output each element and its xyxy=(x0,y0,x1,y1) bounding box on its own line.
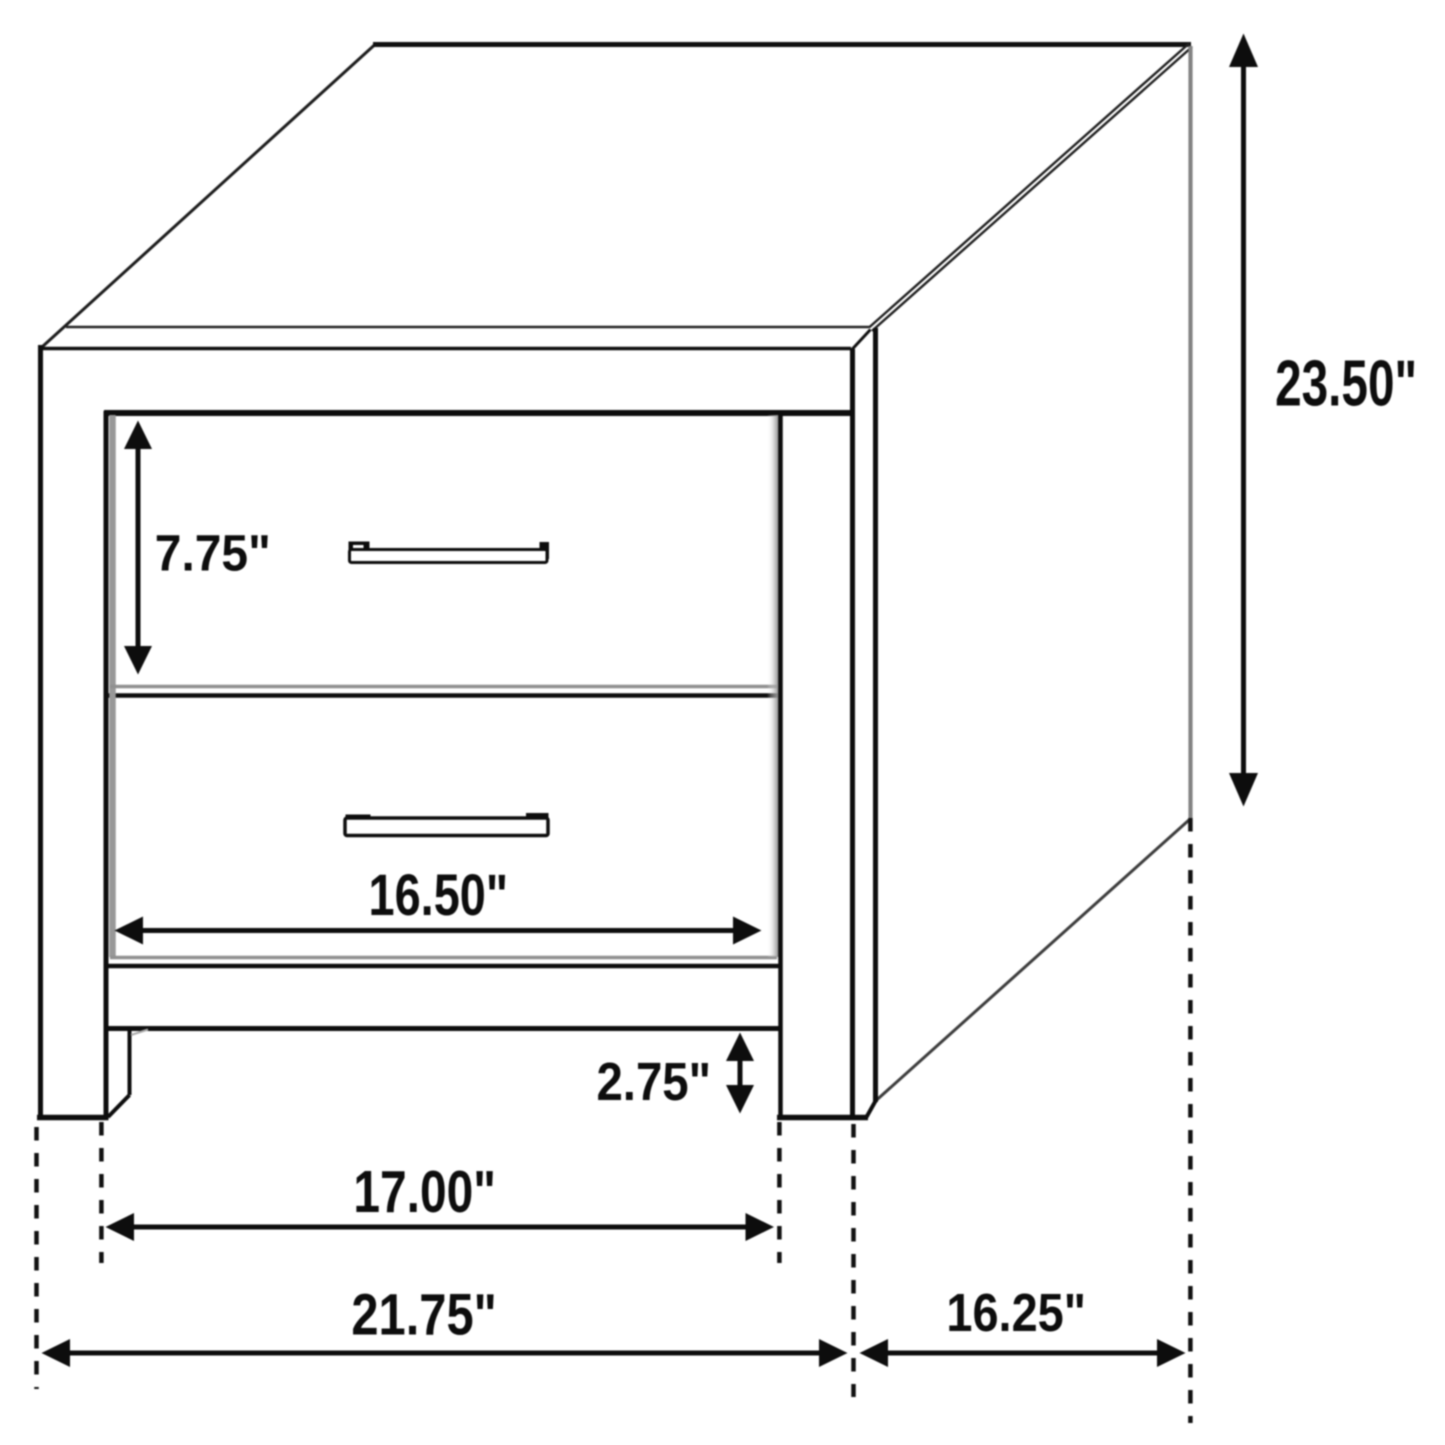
svg-text:16.50": 16.50" xyxy=(369,863,509,928)
svg-text:7.75": 7.75" xyxy=(155,525,271,582)
svg-text:21.75": 21.75" xyxy=(351,1283,497,1348)
svg-text:2.75": 2.75" xyxy=(596,1053,711,1112)
svg-text:17.00": 17.00" xyxy=(353,1159,496,1225)
svg-text:16.25": 16.25" xyxy=(946,1284,1086,1343)
svg-text:23.50": 23.50" xyxy=(1275,347,1417,420)
